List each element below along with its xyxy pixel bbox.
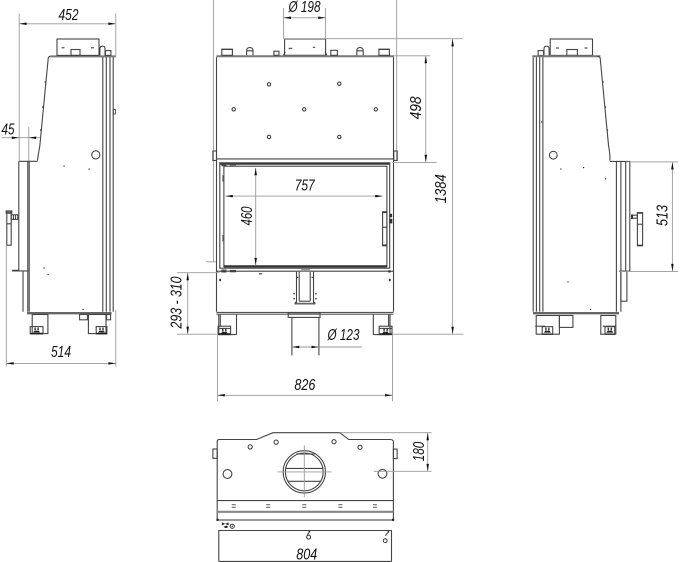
svg-text:498: 498 [408,96,425,119]
svg-text:Ø 123: Ø 123 [327,327,360,344]
svg-text:804: 804 [296,547,317,562]
svg-text:514: 514 [51,344,71,361]
svg-text:293 - 310: 293 - 310 [168,276,185,329]
svg-text:460: 460 [239,206,256,225]
svg-text:757: 757 [295,178,316,195]
svg-text:1384: 1384 [433,174,450,203]
svg-text:180: 180 [411,442,428,462]
svg-text:452: 452 [59,7,79,24]
svg-text:Ø 198: Ø 198 [288,0,321,16]
svg-text:826: 826 [294,377,315,394]
svg-text:45: 45 [2,122,15,139]
svg-text:513: 513 [654,205,671,226]
